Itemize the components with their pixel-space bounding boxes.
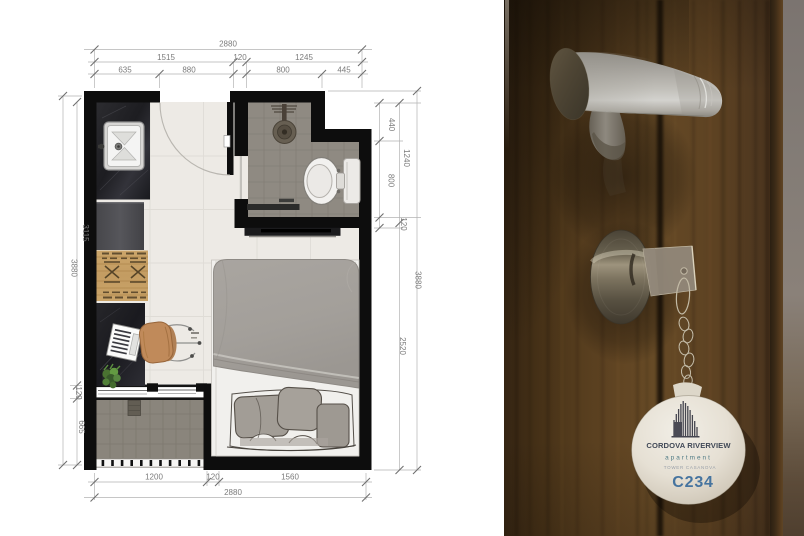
svg-text:120: 120: [206, 473, 220, 482]
svg-text:1560: 1560: [281, 473, 299, 482]
svg-text:2880: 2880: [219, 40, 237, 49]
svg-text:2880: 2880: [224, 488, 242, 497]
svg-text:120: 120: [233, 53, 247, 62]
svg-text:120: 120: [399, 217, 408, 231]
svg-text:665: 665: [77, 420, 86, 434]
svg-text:120: 120: [74, 386, 83, 400]
svg-text:800: 800: [387, 174, 396, 188]
svg-text:CORDOVA RIVERVIEW: CORDOVA RIVERVIEW: [646, 441, 731, 450]
svg-text:3115: 3115: [81, 224, 90, 242]
svg-text:880: 880: [182, 66, 196, 75]
svg-text:C234: C234: [672, 474, 713, 491]
svg-text:1240: 1240: [402, 149, 411, 167]
svg-text:1200: 1200: [145, 473, 163, 482]
svg-text:3880: 3880: [70, 259, 79, 277]
svg-text:1515: 1515: [157, 53, 175, 62]
svg-text:2520: 2520: [398, 337, 407, 355]
svg-text:440: 440: [387, 118, 396, 132]
svg-text:1245: 1245: [295, 53, 313, 62]
svg-text:apartment: apartment: [665, 455, 712, 462]
svg-text:TOWER CASANOVA: TOWER CASANOVA: [664, 465, 716, 470]
svg-text:445: 445: [337, 66, 351, 75]
svg-text:3880: 3880: [414, 271, 423, 289]
svg-text:800: 800: [276, 66, 290, 75]
svg-text:635: 635: [118, 66, 132, 75]
